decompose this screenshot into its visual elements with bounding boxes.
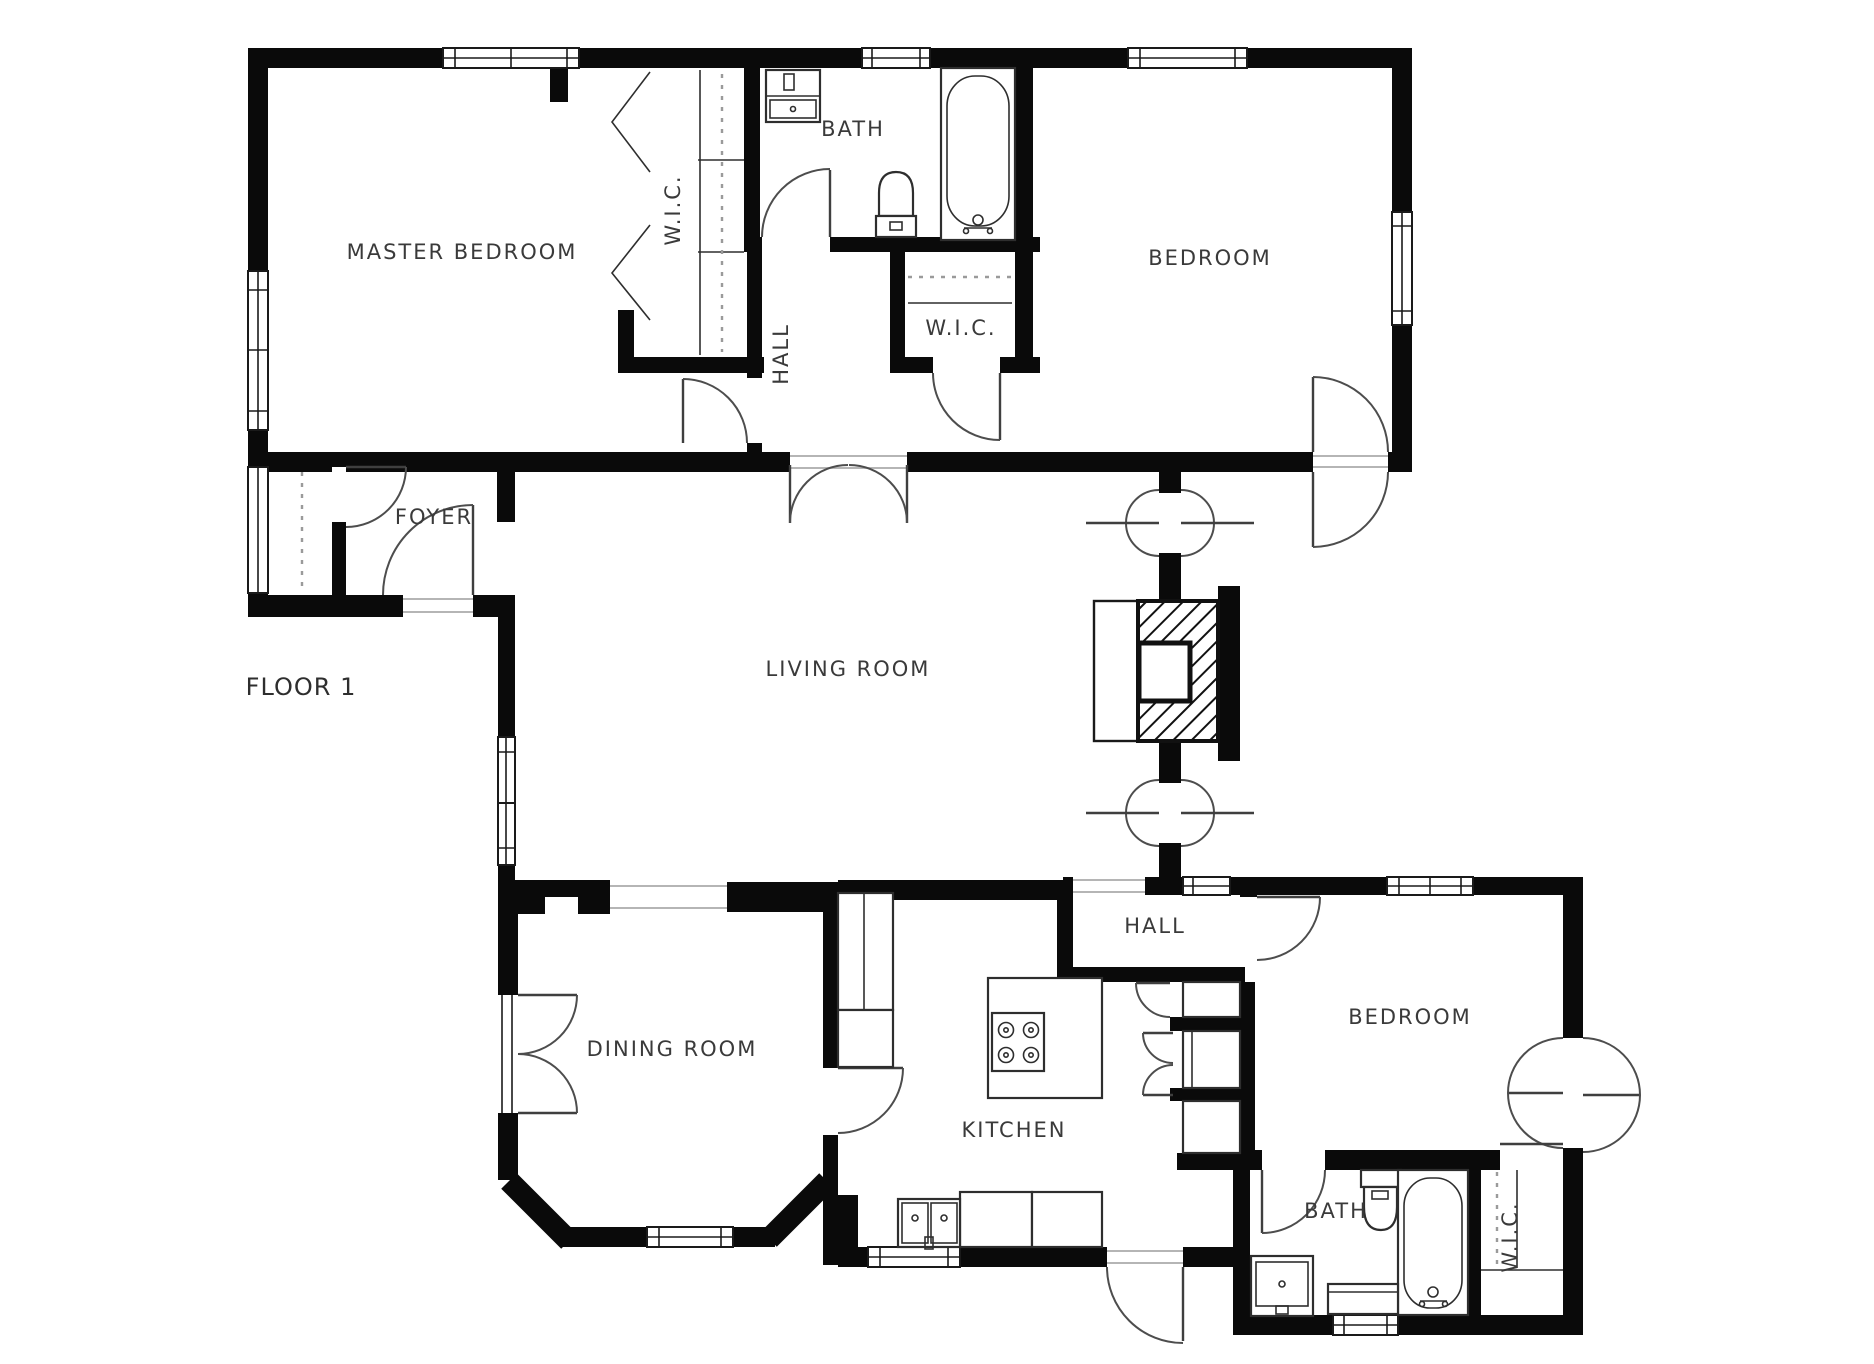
sink-vanity bbox=[766, 70, 820, 122]
room-label-foyer: FOYER bbox=[395, 505, 473, 529]
window-bedroom-upper-right bbox=[1392, 212, 1412, 325]
firebox bbox=[1139, 643, 1190, 701]
window-living-west-2 bbox=[498, 803, 515, 865]
window-hall-lower-top bbox=[1183, 877, 1230, 895]
fireplace bbox=[1094, 601, 1218, 741]
sink-vanity bbox=[1251, 1256, 1313, 1316]
bath-cabinet bbox=[1328, 1284, 1398, 1314]
bath-lower-fixtures bbox=[1251, 1170, 1468, 1316]
room-label-wic-upper: W.I.C. bbox=[925, 316, 996, 340]
wic-upper-door bbox=[933, 373, 1000, 440]
master-bedroom-door bbox=[683, 379, 747, 443]
floor-plan: MASTER BEDROOM W.I.C. BATH HALL W.I.C. B… bbox=[0, 0, 1874, 1364]
dining-kitchen-door bbox=[838, 1068, 903, 1133]
bathtub bbox=[1398, 1170, 1468, 1315]
room-label-bath-upper: BATH bbox=[821, 117, 885, 141]
window-foyer-left bbox=[248, 467, 268, 593]
window-master-top bbox=[443, 48, 579, 68]
bath-upper-fixtures bbox=[766, 68, 1015, 240]
window-dining-bottom bbox=[647, 1227, 733, 1247]
kitchen-back-door bbox=[1107, 1267, 1183, 1343]
room-label-bedroom-upper: BEDROOM bbox=[1148, 246, 1272, 270]
floor-plan-page: MASTER BEDROOM W.I.C. BATH HALL W.I.C. B… bbox=[0, 0, 1874, 1364]
window-bedroom-upper-top bbox=[1128, 48, 1247, 68]
window-master-left bbox=[248, 271, 268, 430]
room-label-living-room: LIVING ROOM bbox=[766, 657, 931, 681]
living-east-door-1 bbox=[1086, 490, 1254, 556]
wic-upper-interior bbox=[908, 277, 1012, 303]
window-bedroom-lower-top bbox=[1387, 877, 1473, 895]
window-living-west-1 bbox=[498, 737, 515, 803]
living-east-door-2 bbox=[1086, 780, 1254, 846]
window-kitchen-bottom bbox=[868, 1247, 960, 1267]
kitchen-sink bbox=[898, 1199, 960, 1249]
bath-upper-door bbox=[762, 169, 830, 237]
toilet bbox=[876, 172, 916, 237]
plan-title: FLOOR 1 bbox=[246, 673, 357, 701]
stove bbox=[992, 1013, 1044, 1071]
room-label-wic-master: W.I.C. bbox=[661, 174, 685, 245]
pantry-closets bbox=[1183, 982, 1240, 1153]
wic-lower-interior bbox=[1481, 1170, 1563, 1270]
hall-french-doors bbox=[790, 465, 907, 523]
window-bath-upper bbox=[862, 48, 930, 68]
room-labels: MASTER BEDROOM W.I.C. BATH HALL W.I.C. B… bbox=[246, 117, 1522, 1273]
room-label-dining-room: DINING ROOM bbox=[587, 1037, 758, 1061]
bedroom-lower-door bbox=[1257, 897, 1320, 960]
room-label-kitchen: KITCHEN bbox=[962, 1118, 1067, 1142]
room-label-bath-lower: BATH bbox=[1304, 1199, 1368, 1223]
room-label-hall-lower: HALL bbox=[1124, 914, 1186, 938]
room-label-wic-lower: W.I.C. bbox=[1498, 1201, 1522, 1272]
window-bath-lower-bottom bbox=[1333, 1315, 1398, 1335]
room-label-master-bedroom: MASTER BEDROOM bbox=[347, 240, 578, 264]
bathtub bbox=[941, 68, 1015, 240]
room-label-bedroom-lower: BEDROOM bbox=[1348, 1005, 1472, 1029]
room-label-hall-upper: HALL bbox=[769, 323, 793, 385]
pantry-closet-doors bbox=[1136, 983, 1173, 1095]
